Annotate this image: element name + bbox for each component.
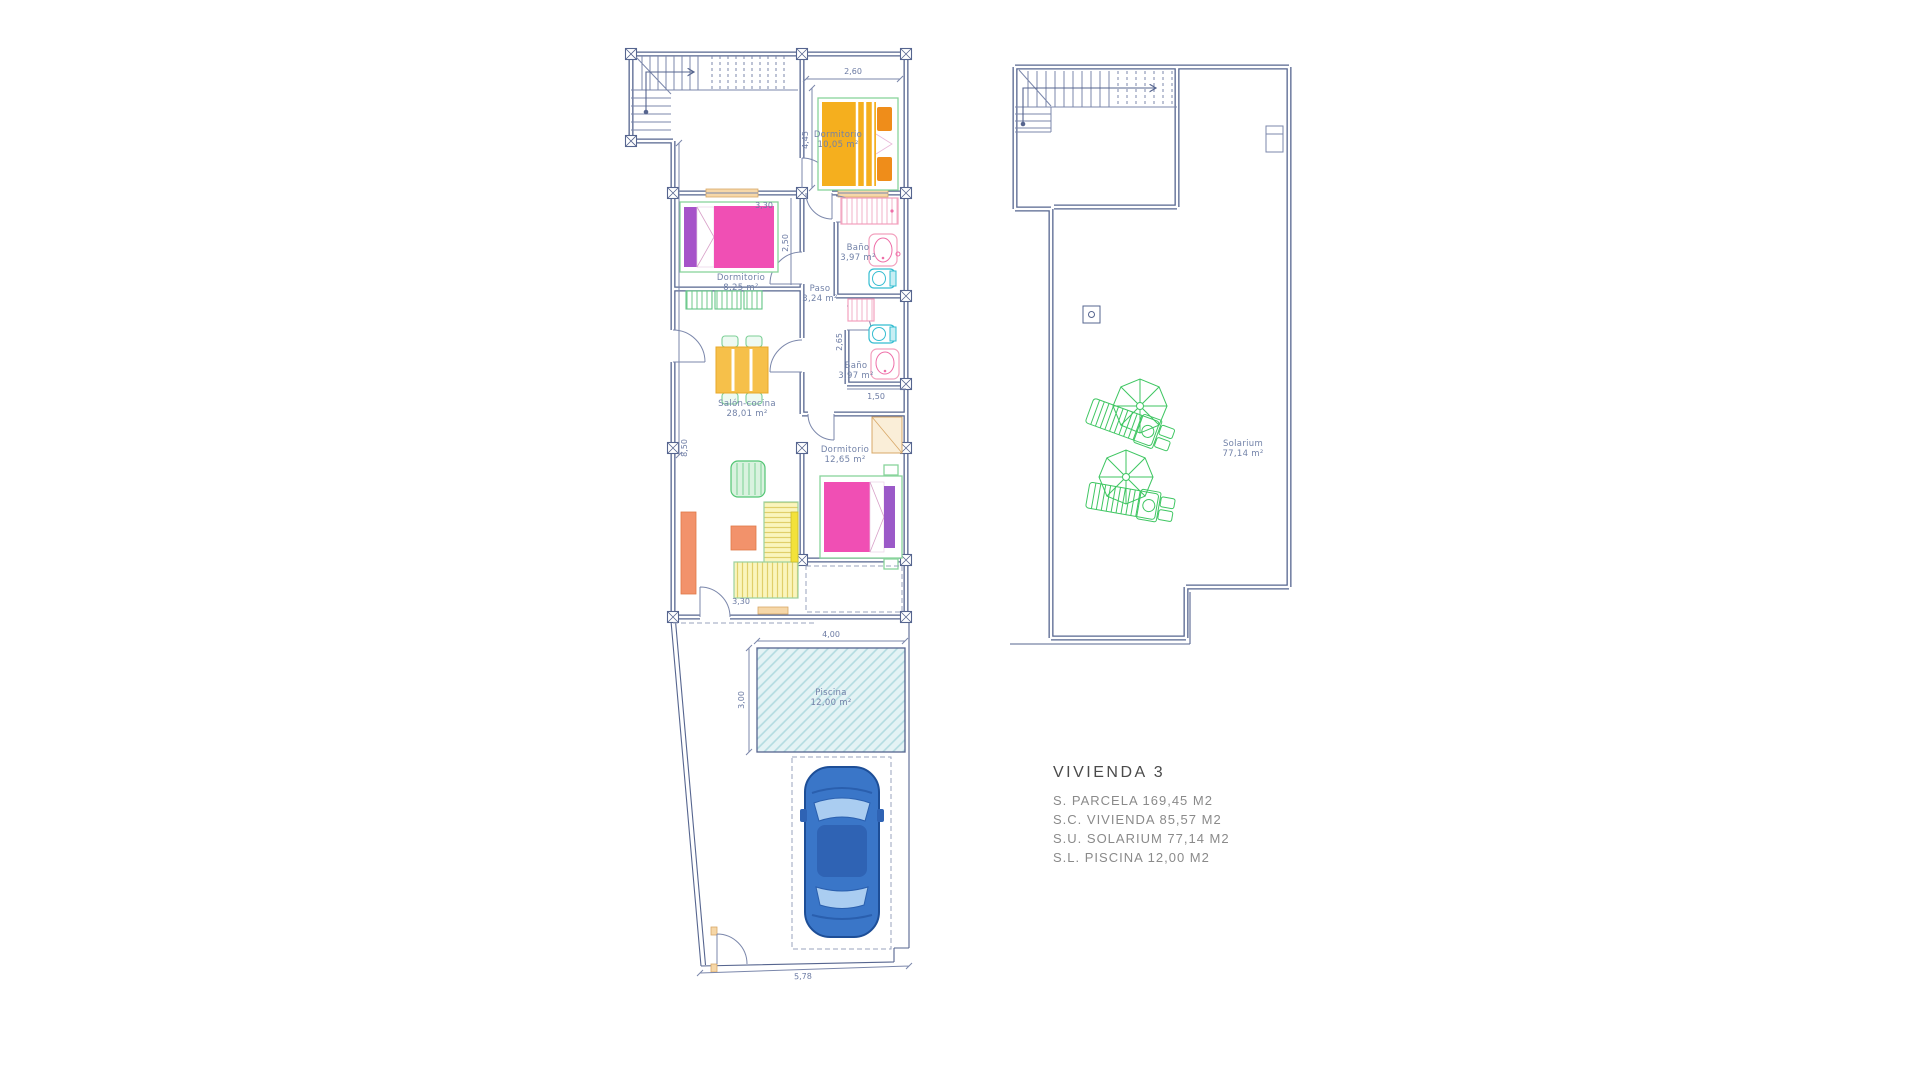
room-pool-area: 12,00 m² — [810, 698, 851, 708]
legend-block: VIVIENDA 3 S. PARCELA 169,45 M2 S.C. VIV… — [1053, 764, 1230, 867]
dim-bed2-height: 2,50 — [781, 234, 790, 252]
room-salon-area: 28,01 m² — [726, 409, 767, 419]
ground-floor-plan: 5,78 2,60 4,45 3,30 2,50 2,65 1,50 8,50 … — [626, 49, 913, 982]
dim-pool-width: 4,00 — [822, 630, 840, 639]
coffee-table — [731, 526, 756, 550]
dim-pool-height: 3,00 — [737, 691, 746, 709]
room-bath1-name: Baño — [847, 243, 870, 253]
lounger-icon — [1084, 396, 1176, 454]
solarium-walls — [1010, 67, 1289, 644]
room-paso-area: 3,24 m² — [802, 294, 837, 304]
legend-row-solarium: S.U. SOLARIUM 77,14 M2 — [1053, 829, 1230, 848]
legend-row-parcela: S. PARCELA 169,45 M2 — [1053, 791, 1230, 810]
roof-room-labels: Solarium 77,14 m² — [1222, 439, 1263, 459]
roof-stair-direction-arrow — [1023, 88, 1156, 124]
sofa-horizontal — [734, 562, 798, 598]
room-bath2-area: 3,97 m² — [838, 371, 873, 381]
armchair — [731, 461, 765, 497]
dining-set — [716, 336, 768, 404]
dim-salon-height: 8,50 — [680, 439, 689, 457]
legend-title: VIVIENDA 3 — [1053, 764, 1230, 782]
roof-plan: Solarium 77,14 m² — [1010, 67, 1289, 644]
dim-bed1-height: 4,45 — [801, 131, 810, 149]
room-bath2-name: Baño — [845, 361, 868, 371]
tv-cabinet — [681, 512, 696, 594]
roof-equipment — [1266, 126, 1283, 152]
parasol-icon — [1099, 450, 1153, 504]
dim-bed1-width: 2,60 — [844, 67, 862, 76]
parking-space — [792, 757, 891, 949]
roof-staircase — [1015, 70, 1177, 132]
room-dorm2-area: 8,25 m² — [723, 283, 758, 293]
dim-hall-height: 2,65 — [835, 333, 844, 351]
legend-row-vivienda: S.C. VIVIENDA 85,57 M2 — [1053, 810, 1230, 829]
room-dorm3-name: Dormitorio — [821, 445, 869, 455]
room-paso-name: Paso — [810, 284, 831, 294]
dim-plot-width: 5,78 — [794, 972, 812, 982]
dim-bath2-width: 1,50 — [867, 392, 885, 401]
roof-chimney — [1083, 306, 1100, 323]
living-room-furniture — [681, 461, 798, 598]
room-dorm2-name: Dormitorio — [717, 273, 765, 283]
room-dorm3-area: 12,65 m² — [824, 455, 865, 465]
room-salon-name: Salón-cocina — [718, 398, 776, 409]
room-solarium-area: 77,14 m² — [1222, 449, 1263, 459]
legend-row-piscina: S.L. PISCINA 12,00 M2 — [1053, 848, 1230, 867]
staircase — [631, 56, 798, 130]
sun-loungers — [1084, 379, 1176, 525]
room-bath1-area: 3,97 m² — [840, 253, 875, 263]
dim-salon-door: 3,30 — [732, 597, 750, 606]
floorplan-page: 5,78 2,60 4,45 3,30 2,50 2,65 1,50 8,50 … — [0, 0, 1920, 1080]
roof-details — [1083, 126, 1283, 323]
car — [800, 767, 884, 937]
room-pool-name: Piscina — [815, 688, 846, 698]
kitchen-units — [686, 291, 762, 309]
dim-bed2-width: 3,30 — [755, 201, 773, 210]
room-solarium-name: Solarium — [1223, 439, 1263, 449]
floorplan-drawing: 5,78 2,60 4,45 3,30 2,50 2,65 1,50 8,50 … — [0, 0, 1920, 1080]
double-bed — [680, 202, 778, 272]
room-dorm1-name: Dormitorio — [814, 130, 862, 140]
room-dorm1-area: 10,05 m² — [817, 140, 858, 150]
